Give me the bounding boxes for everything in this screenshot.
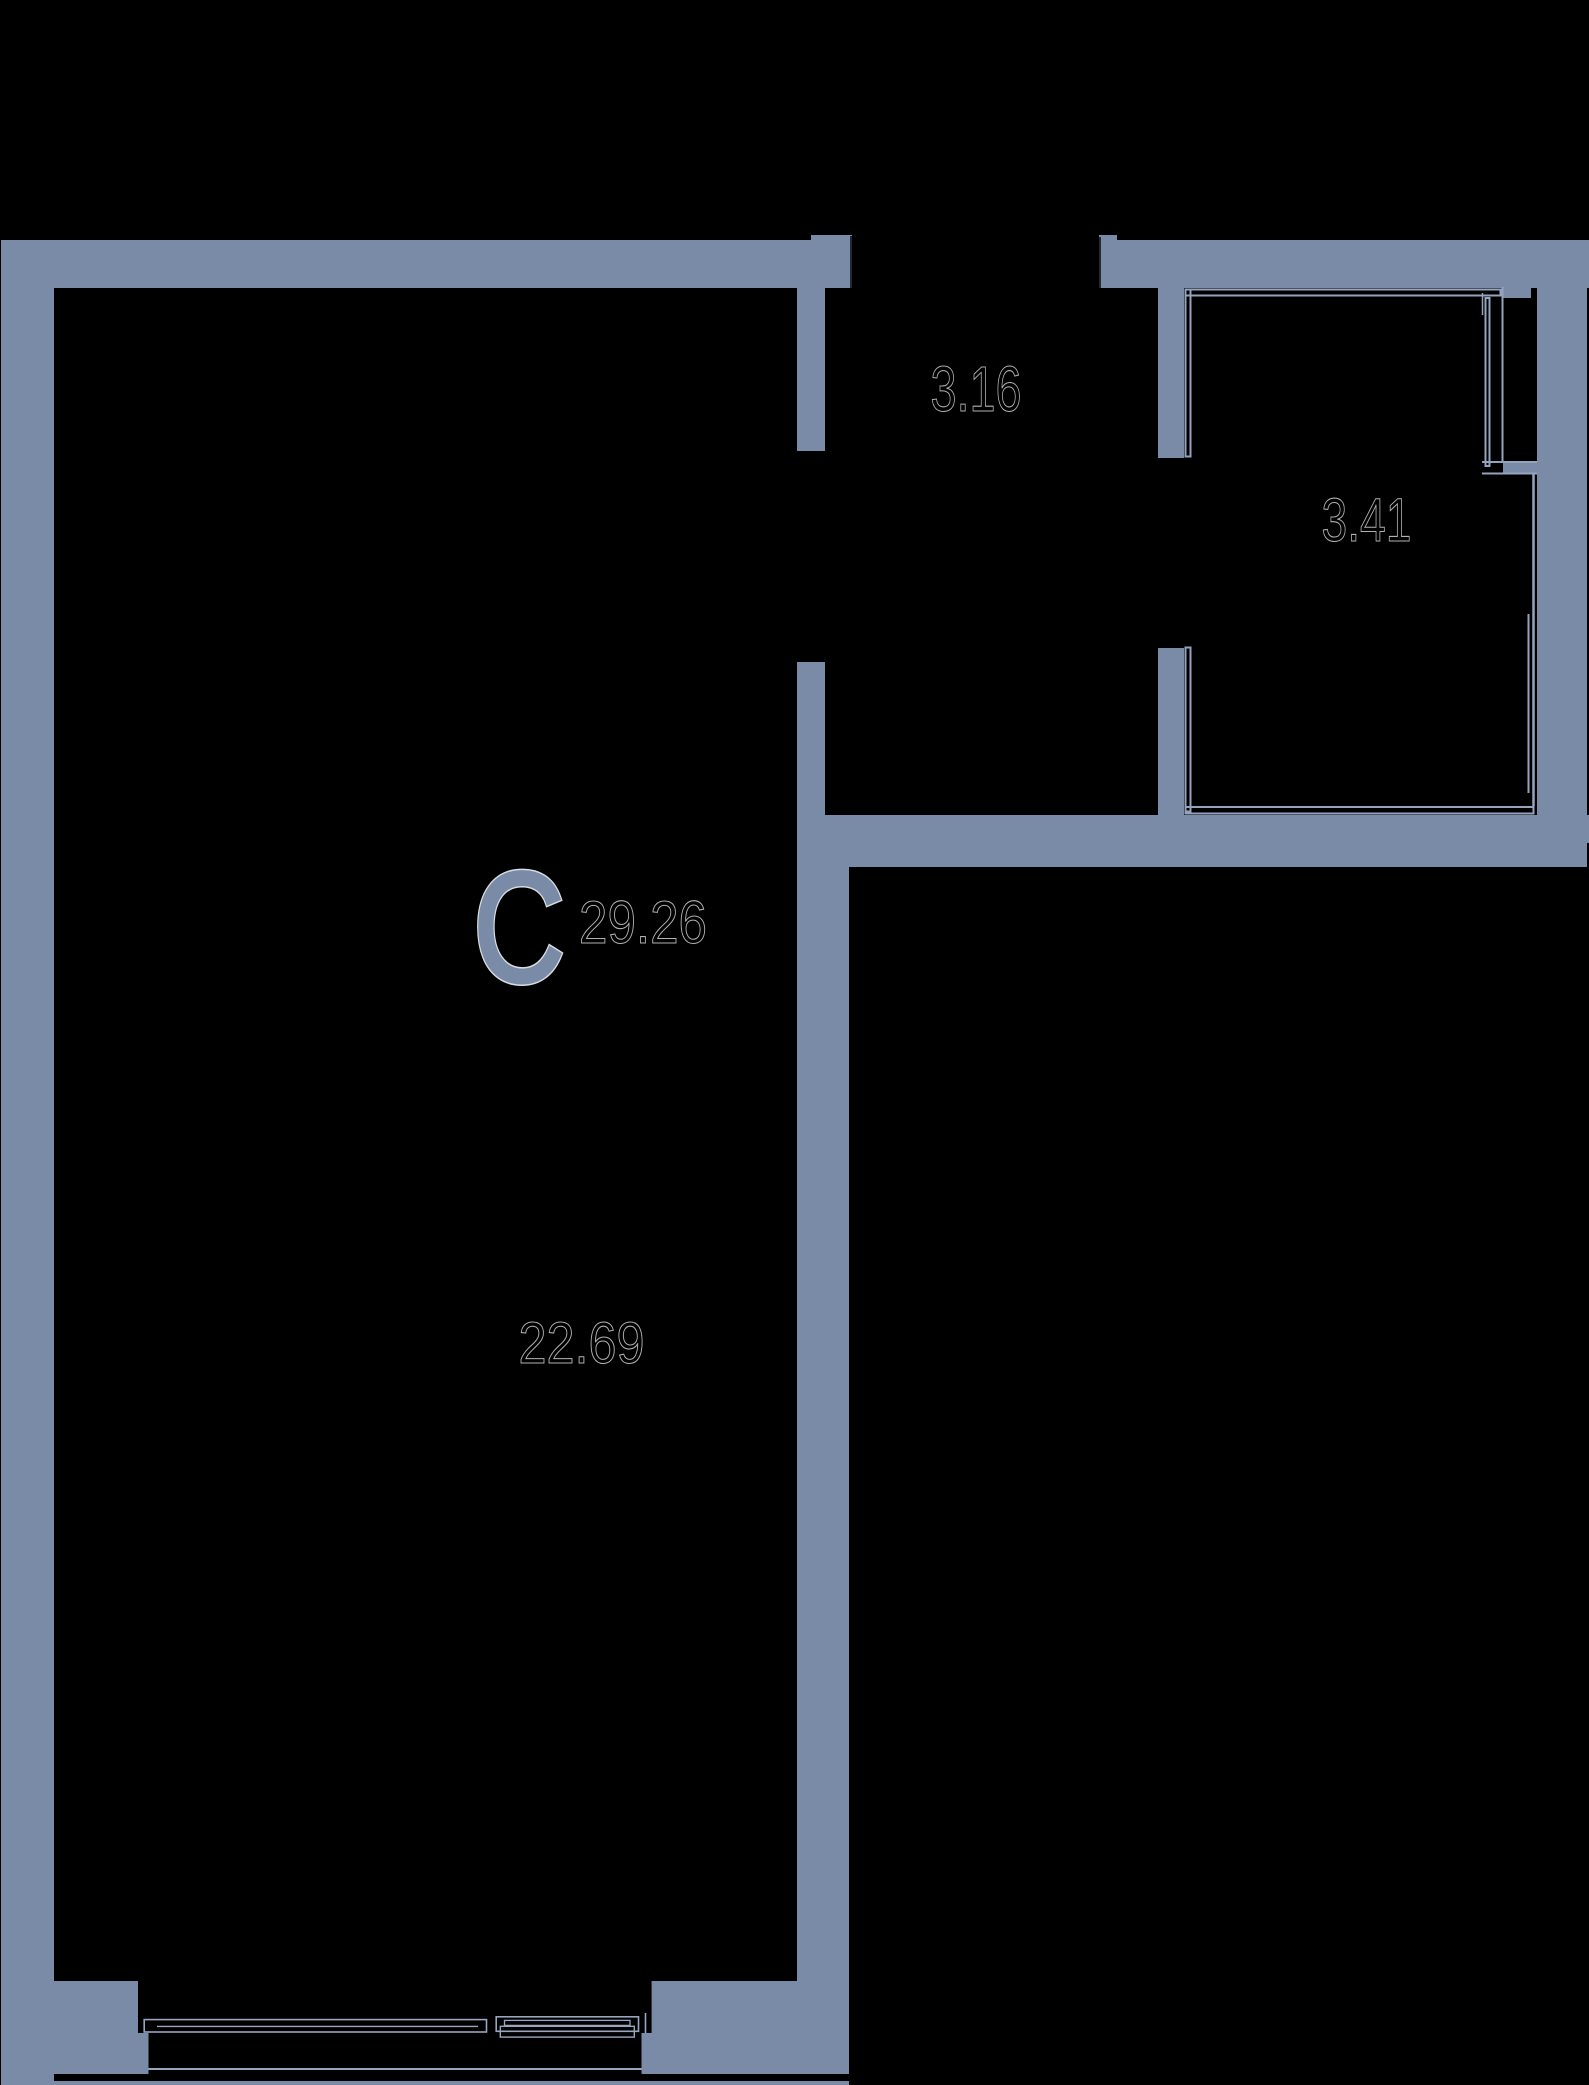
svg-text:3.41: 3.41 [1322, 486, 1412, 554]
svg-text:С: С [474, 841, 565, 1015]
svg-text:3.16: 3.16 [931, 353, 1022, 425]
svg-text:22.69: 22.69 [519, 1311, 645, 1376]
svg-text:29.26: 29.26 [579, 888, 707, 956]
